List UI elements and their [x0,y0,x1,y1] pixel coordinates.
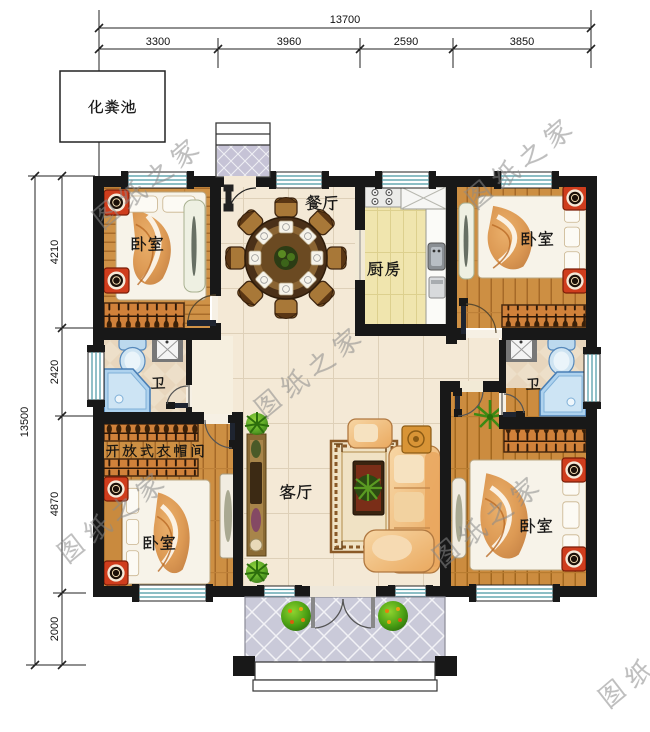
svg-text:3300: 3300 [146,36,170,48]
svg-text:3960: 3960 [277,36,301,48]
svg-text:2420: 2420 [49,360,61,384]
svg-text:3850: 3850 [510,36,534,48]
svg-text:4870: 4870 [49,492,61,516]
svg-text:4210: 4210 [49,240,61,264]
svg-text:2590: 2590 [394,36,418,48]
svg-text:2000: 2000 [49,617,61,641]
svg-text:13500: 13500 [19,407,31,438]
svg-text:13700: 13700 [330,14,361,26]
